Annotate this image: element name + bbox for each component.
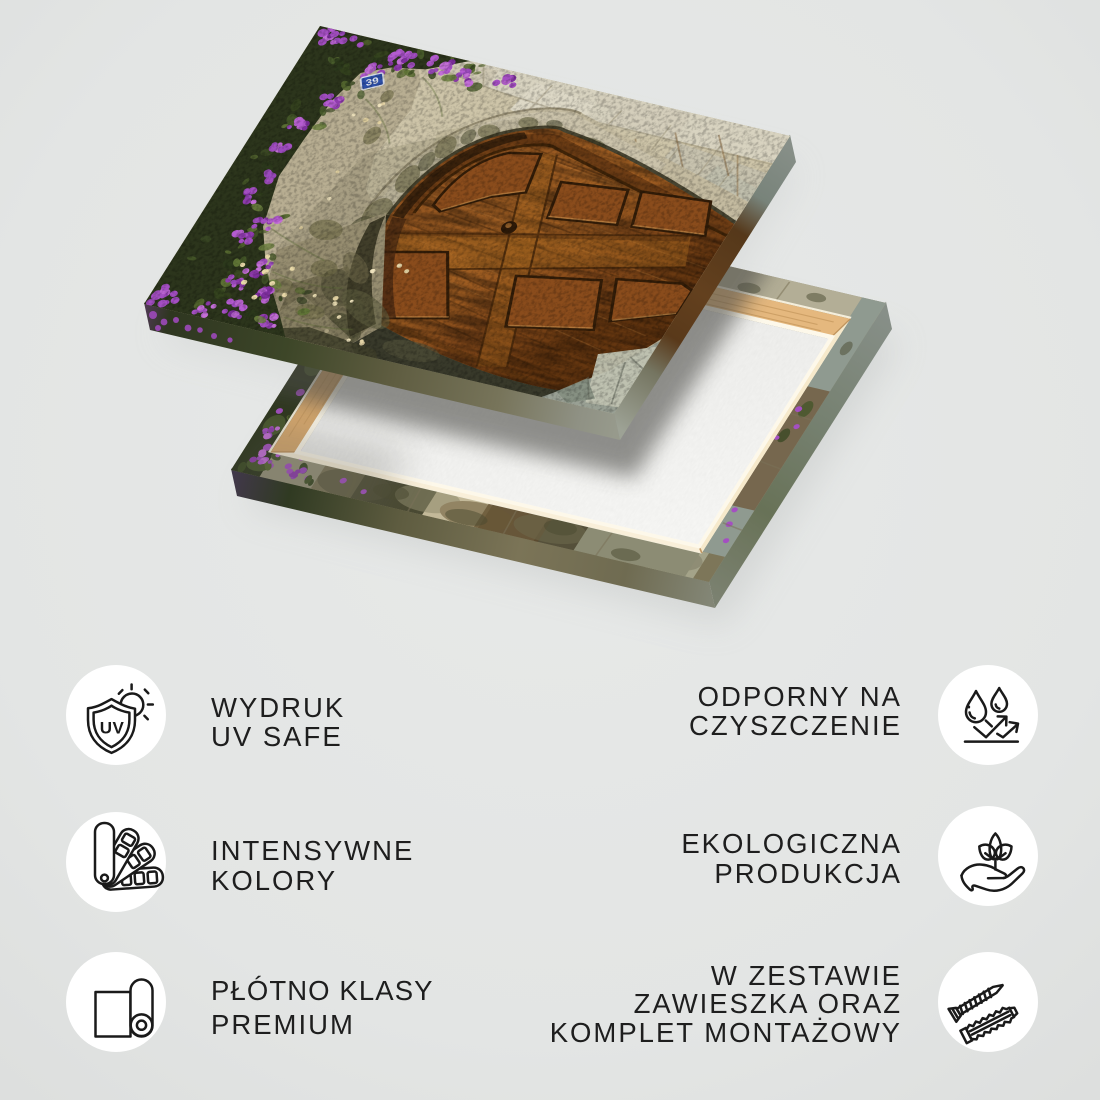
svg-text:UV SAFE: UV SAFE xyxy=(211,721,343,752)
svg-text:INTENSYWNE: INTENSYWNE xyxy=(211,835,414,866)
svg-text:ODPORNY NA: ODPORNY NA xyxy=(698,681,902,712)
svg-text:PRODUKCJA: PRODUKCJA xyxy=(714,858,902,889)
svg-text:KOMPLET MONTAŻOWY: KOMPLET MONTAŻOWY xyxy=(550,1017,902,1048)
svg-text:EKOLOGICZNA: EKOLOGICZNA xyxy=(681,828,902,859)
svg-text:WYDRUK: WYDRUK xyxy=(211,692,345,723)
svg-text:W ZESTAWIE: W ZESTAWIE xyxy=(711,960,902,991)
svg-text:ZAWIESZKA ORAZ: ZAWIESZKA ORAZ xyxy=(634,988,902,1019)
svg-text:UV: UV xyxy=(100,719,125,738)
svg-text:CZYSZCZENIE: CZYSZCZENIE xyxy=(689,710,902,741)
svg-text:PŁÓTNO KLASY: PŁÓTNO KLASY xyxy=(211,975,434,1006)
svg-text:KOLORY: KOLORY xyxy=(211,865,337,896)
svg-text:PREMIUM: PREMIUM xyxy=(211,1009,355,1040)
